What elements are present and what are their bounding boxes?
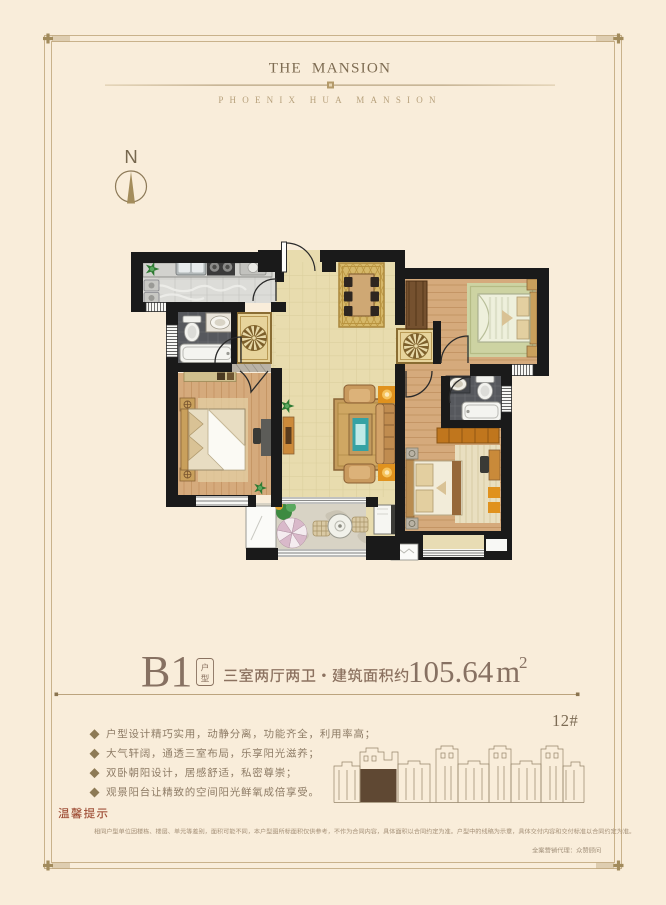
svg-text:THE MANSION: THE MANSION (269, 60, 391, 77)
svg-text:12#: 12# (552, 711, 578, 730)
svg-text:PHOENIX HUA MANSION: PHOENIX HUA MANSION (218, 95, 441, 105)
svg-text:B1: B1 (141, 647, 192, 696)
svg-text:2: 2 (519, 653, 528, 672)
svg-text:m: m (496, 654, 520, 689)
svg-text:N: N (124, 146, 137, 167)
svg-text:105.64: 105.64 (408, 654, 494, 689)
